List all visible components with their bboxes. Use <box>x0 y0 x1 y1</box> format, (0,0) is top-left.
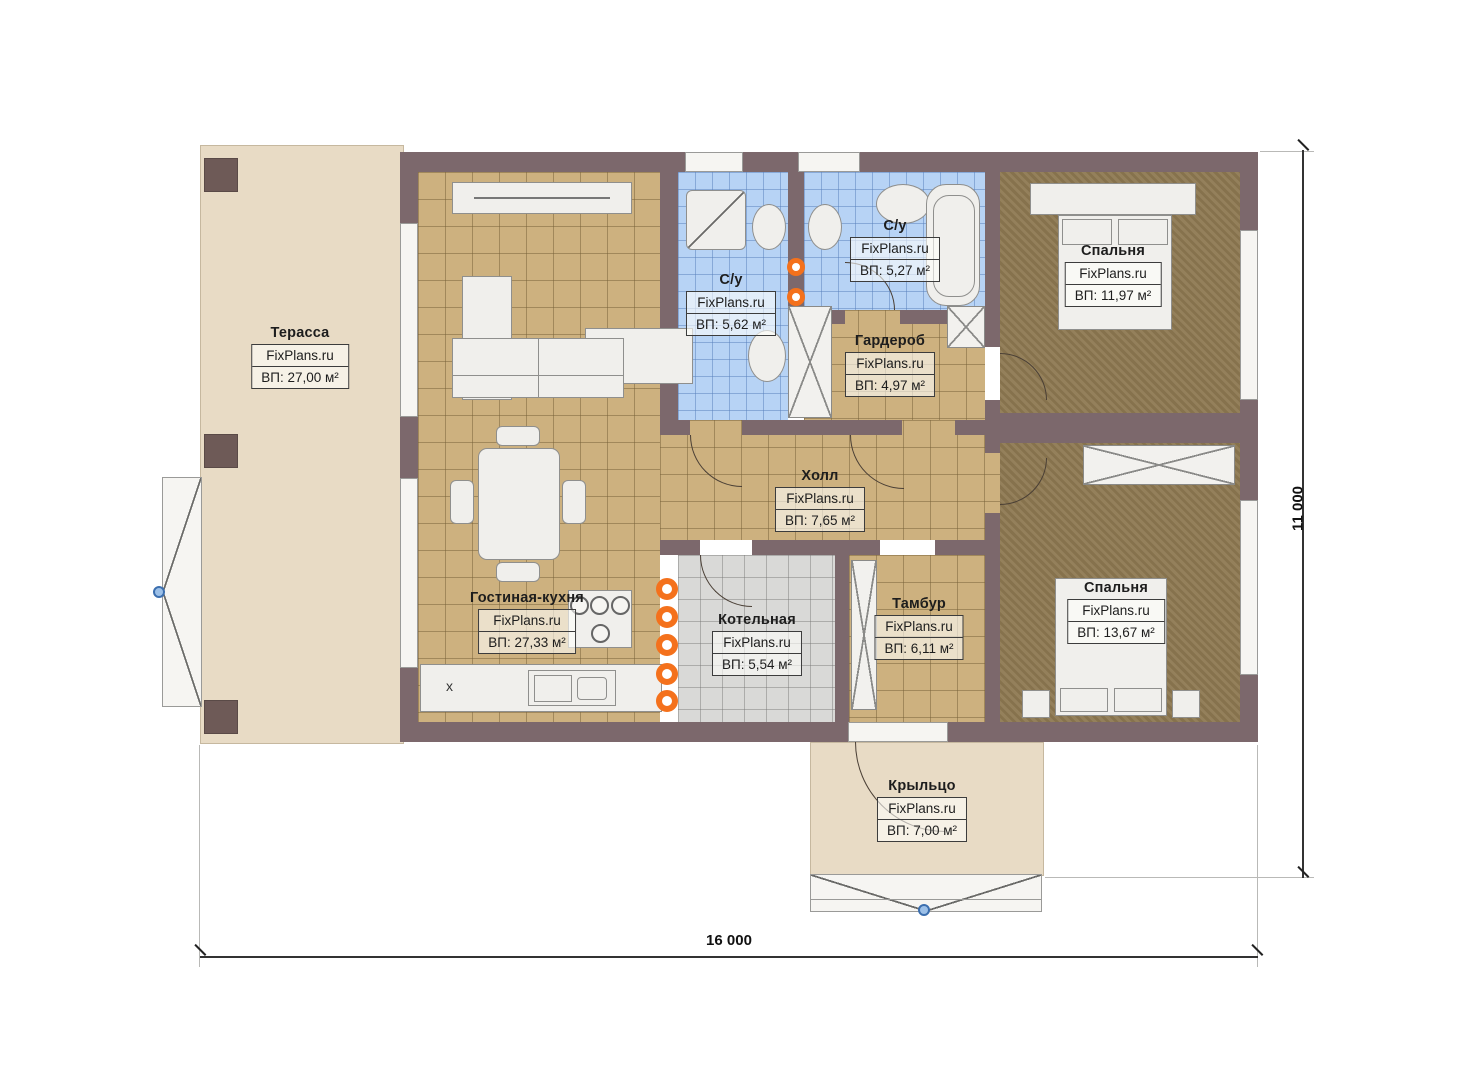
extension-line <box>1257 745 1258 967</box>
room-label-hall: Холл FixPlans.ru ВП: 7,65 м² <box>775 468 865 532</box>
room-info-box: FixPlans.ru ВП: 5,62 м² <box>686 291 776 336</box>
wall-bedroom-divider <box>1000 413 1240 443</box>
room-label-vestibule: Тамбур FixPlans.ru ВП: 6,11 м² <box>874 596 963 660</box>
watermark-text: FixPlans.ru <box>776 488 864 509</box>
shower-cabin <box>686 190 746 250</box>
room-info-box: FixPlans.ru ВП: 4,97 м² <box>845 352 935 397</box>
room-name: Спальня <box>1065 243 1162 259</box>
wall-hall-top <box>955 420 985 435</box>
entry-door-opening <box>848 722 948 742</box>
room-area: ВП: 5,54 м² <box>713 653 801 675</box>
room-label-living-kitchen: Гостиная-кухня FixPlans.ru ВП: 27,33 м² <box>470 590 584 654</box>
watermark-text: FixPlans.ru <box>479 610 575 631</box>
watermark-text: FixPlans.ru <box>1068 600 1164 621</box>
room-name: Гостиная-кухня <box>470 590 584 606</box>
room-info-box: FixPlans.ru ВП: 27,33 м² <box>478 609 576 654</box>
sofa <box>452 338 624 398</box>
kitchen-sink <box>528 670 616 706</box>
pillow <box>1114 688 1162 712</box>
room-area: ВП: 27,33 м² <box>479 631 575 653</box>
room-name: Тамбур <box>874 596 963 612</box>
tv-console <box>452 182 632 214</box>
radiator-icon <box>787 258 805 276</box>
room-label-bedroom1: Спальня FixPlans.ru ВП: 11,97 м² <box>1065 243 1162 307</box>
wall-hall-bedroom2 <box>985 513 1000 555</box>
watermark-text: FixPlans.ru <box>878 798 966 819</box>
wall-vestibule-bedroom2 <box>985 555 1000 722</box>
room-name: Терасса <box>251 325 349 341</box>
room-info-box: FixPlans.ru ВП: 27,00 м² <box>251 344 349 389</box>
room-name: Крыльцо <box>877 778 967 794</box>
room-area: ВП: 6,11 м² <box>875 637 962 659</box>
room-label-wardrobe: Гардероб FixPlans.ru ВП: 4,97 м² <box>845 333 935 397</box>
wall-hall-bottom <box>935 540 985 555</box>
dining-chair <box>496 426 540 446</box>
radiator-icon <box>787 288 805 306</box>
dining-table <box>478 448 560 560</box>
room-area: ВП: 7,00 м² <box>878 819 966 841</box>
sink <box>748 330 786 382</box>
window-terrace-lower <box>400 478 418 668</box>
terrace-post <box>204 158 238 192</box>
room-info-box: FixPlans.ru ВП: 5,27 м² <box>850 237 940 282</box>
window-bedroom2 <box>1240 500 1258 675</box>
room-info-box: FixPlans.ru ВП: 7,65 м² <box>775 487 865 532</box>
room-label-boiler: Котельная FixPlans.ru ВП: 5,54 м² <box>712 612 802 676</box>
radiator-icon <box>656 663 678 685</box>
wall-hall-bottom <box>752 540 880 555</box>
stove-burner-icon <box>591 624 610 643</box>
watermark-text: FixPlans.ru <box>713 632 801 653</box>
dining-chair <box>562 480 586 524</box>
room-area: ВП: 4,97 м² <box>846 374 934 396</box>
room-area: ВП: 7,65 м² <box>776 509 864 531</box>
radiator-icon <box>656 578 678 600</box>
dimension-tick <box>1298 139 1310 151</box>
wall-hall-top <box>742 420 902 435</box>
window-bathroom1 <box>685 152 743 172</box>
room-area: ВП: 11,97 м² <box>1066 284 1161 306</box>
terrace-post <box>204 434 238 468</box>
room-area: ВП: 13,67 м² <box>1068 621 1164 643</box>
floor-plan-page: x <box>0 0 1474 1080</box>
survey-point <box>153 586 165 598</box>
closet <box>1083 445 1235 485</box>
window-terrace-upper <box>400 223 418 417</box>
room-info-box: FixPlans.ru ВП: 6,11 м² <box>874 615 963 660</box>
room-label-terrace: Терасса FixPlans.ru ВП: 27,00 м² <box>251 325 349 389</box>
survey-point <box>918 904 930 916</box>
room-name: С/у <box>850 218 940 234</box>
dining-chair <box>496 562 540 582</box>
kitchen-appliance-marker: x <box>446 678 453 694</box>
nightstand <box>1022 690 1050 718</box>
watermark-text: FixPlans.ru <box>252 345 348 366</box>
closet <box>851 560 877 710</box>
radiator-icon <box>656 690 678 712</box>
extension-line <box>199 745 200 967</box>
closet <box>788 306 832 418</box>
window-bathroom2 <box>798 152 860 172</box>
closet <box>947 306 985 348</box>
dimension-bottom-value: 16 000 <box>679 932 779 949</box>
pillow <box>1118 219 1168 245</box>
wall-wardrobe-bedroom1 <box>985 400 1000 453</box>
room-name: С/у <box>686 272 776 288</box>
watermark-text: FixPlans.ru <box>846 353 934 374</box>
outer-wall-bottom <box>400 722 1258 742</box>
dimension-right-value: 11 000 <box>1290 459 1307 559</box>
watermark-text: FixPlans.ru <box>875 616 962 637</box>
extension-line <box>1045 877 1314 878</box>
bed-headboard <box>1030 183 1196 215</box>
stove-burner-icon <box>611 596 630 615</box>
room-info-box: FixPlans.ru ВП: 11,97 м² <box>1065 262 1162 307</box>
room-info-box: FixPlans.ru ВП: 5,54 м² <box>712 631 802 676</box>
room-area: ВП: 5,62 м² <box>687 313 775 335</box>
room-name: Котельная <box>712 612 802 628</box>
room-label-bathroom1: С/у FixPlans.ru ВП: 5,62 м² <box>686 272 776 336</box>
toilet <box>808 204 842 250</box>
room-area: ВП: 27,00 м² <box>252 366 348 388</box>
wall-hall-top <box>660 420 690 435</box>
wall-boiler-vestibule <box>835 555 849 722</box>
room-info-box: FixPlans.ru ВП: 7,00 м² <box>877 797 967 842</box>
toilet <box>752 204 786 250</box>
terrace-post <box>204 700 238 734</box>
wall-bath1-bath2 <box>788 172 804 306</box>
radiator-icon <box>656 606 678 628</box>
nightstand <box>1172 690 1200 718</box>
room-label-bedroom2: Спальня FixPlans.ru ВП: 13,67 м² <box>1067 580 1165 644</box>
pillow <box>1060 688 1108 712</box>
room-name: Спальня <box>1067 580 1165 596</box>
room-name: Холл <box>775 468 865 484</box>
dimension-line-bottom <box>200 956 1258 958</box>
watermark-text: FixPlans.ru <box>851 238 939 259</box>
room-area: ВП: 5,27 м² <box>851 259 939 281</box>
terrace-steps <box>162 477 202 707</box>
watermark-text: FixPlans.ru <box>687 292 775 313</box>
extension-line <box>1260 151 1314 152</box>
dining-chair <box>450 480 474 524</box>
room-label-porch: Крыльцо FixPlans.ru ВП: 7,00 м² <box>877 778 967 842</box>
room-name: Гардероб <box>845 333 935 349</box>
dimension-tick <box>195 944 207 956</box>
room-info-box: FixPlans.ru ВП: 13,67 м² <box>1067 599 1165 644</box>
window-bedroom1 <box>1240 230 1258 400</box>
pillow <box>1062 219 1112 245</box>
wall-wardrobe-bedroom1 <box>985 172 1000 347</box>
watermark-text: FixPlans.ru <box>1066 263 1161 284</box>
wall-hall-bottom <box>660 540 700 555</box>
stove-burner-icon <box>590 596 609 615</box>
radiator-icon <box>656 634 678 656</box>
room-label-bathroom2: С/у FixPlans.ru ВП: 5,27 м² <box>850 218 940 282</box>
